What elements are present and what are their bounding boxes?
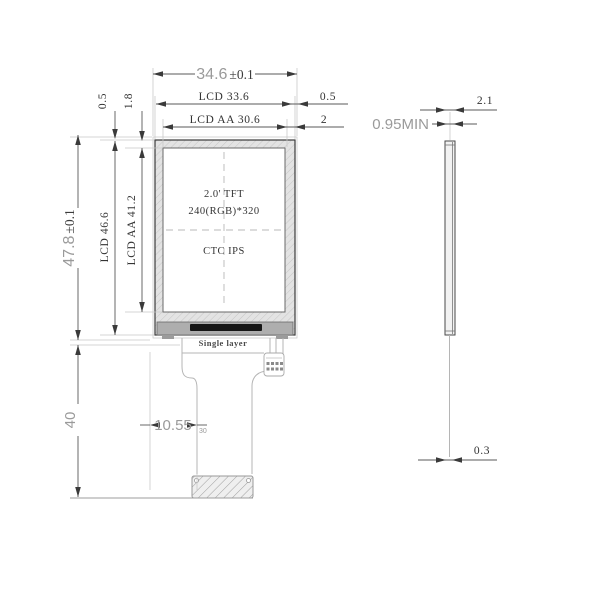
mount-tab-left	[162, 335, 174, 339]
dim-panel-thickness: 0.95MIN	[372, 116, 429, 133]
flex-layer-label: Single layer	[199, 338, 248, 348]
dim-flex-length: 40	[62, 412, 79, 429]
side-view	[445, 141, 455, 457]
dim-overall-height: 47.8±0.1	[61, 209, 78, 266]
dim-aa-height: LCD AA 41.2	[126, 195, 138, 266]
dim-top-gap-outer: 0.5	[97, 93, 109, 109]
flex-outline-left	[182, 338, 197, 474]
backlight-connector	[264, 353, 284, 376]
dim-right-gap-outer: 0.5	[320, 91, 336, 103]
screen-spec-tech: CTC IPS	[203, 246, 245, 257]
dim-total-thickness: 2.1	[477, 95, 493, 107]
dim-tail-offset-note: 30	[199, 428, 207, 435]
driver-ic	[190, 324, 262, 331]
front-dimensions-top: 34.6±0.1 LCD 33.6 0.5 LCD AA 30.6 2	[153, 66, 348, 147]
screen-spec-size: 2.0' TFT	[204, 189, 244, 200]
fpc-end-connector	[192, 476, 253, 498]
dim-flex-thickness: 0.3	[474, 445, 490, 457]
mount-tab-right	[276, 335, 288, 339]
dim-aa-width: LCD AA 30.6	[190, 114, 261, 126]
lcd-module-drawing: 2.0' TFT 240(RGB)*320 CTC IPS Single lay…	[0, 0, 600, 600]
screen-spec-resolution: 240(RGB)*320	[188, 206, 259, 217]
side-dimensions: 2.1 0.95MIN 0.3	[372, 95, 497, 463]
dim-lcd-height: LCD 46.6	[99, 212, 111, 263]
side-profile	[445, 141, 455, 335]
dim-tail-offset: 10.55	[154, 417, 192, 434]
dim-right-gap-aa: 2	[321, 114, 327, 126]
dim-overall-width: 34.6±0.1	[196, 66, 253, 83]
front-view: 2.0' TFT 240(RGB)*320 CTC IPS	[153, 137, 297, 339]
dim-lcd-width: LCD 33.6	[199, 91, 250, 103]
connector-pin-right	[247, 479, 251, 483]
connector-pin-left	[195, 479, 199, 483]
dim-top-gap-aa: 1.8	[123, 93, 135, 109]
